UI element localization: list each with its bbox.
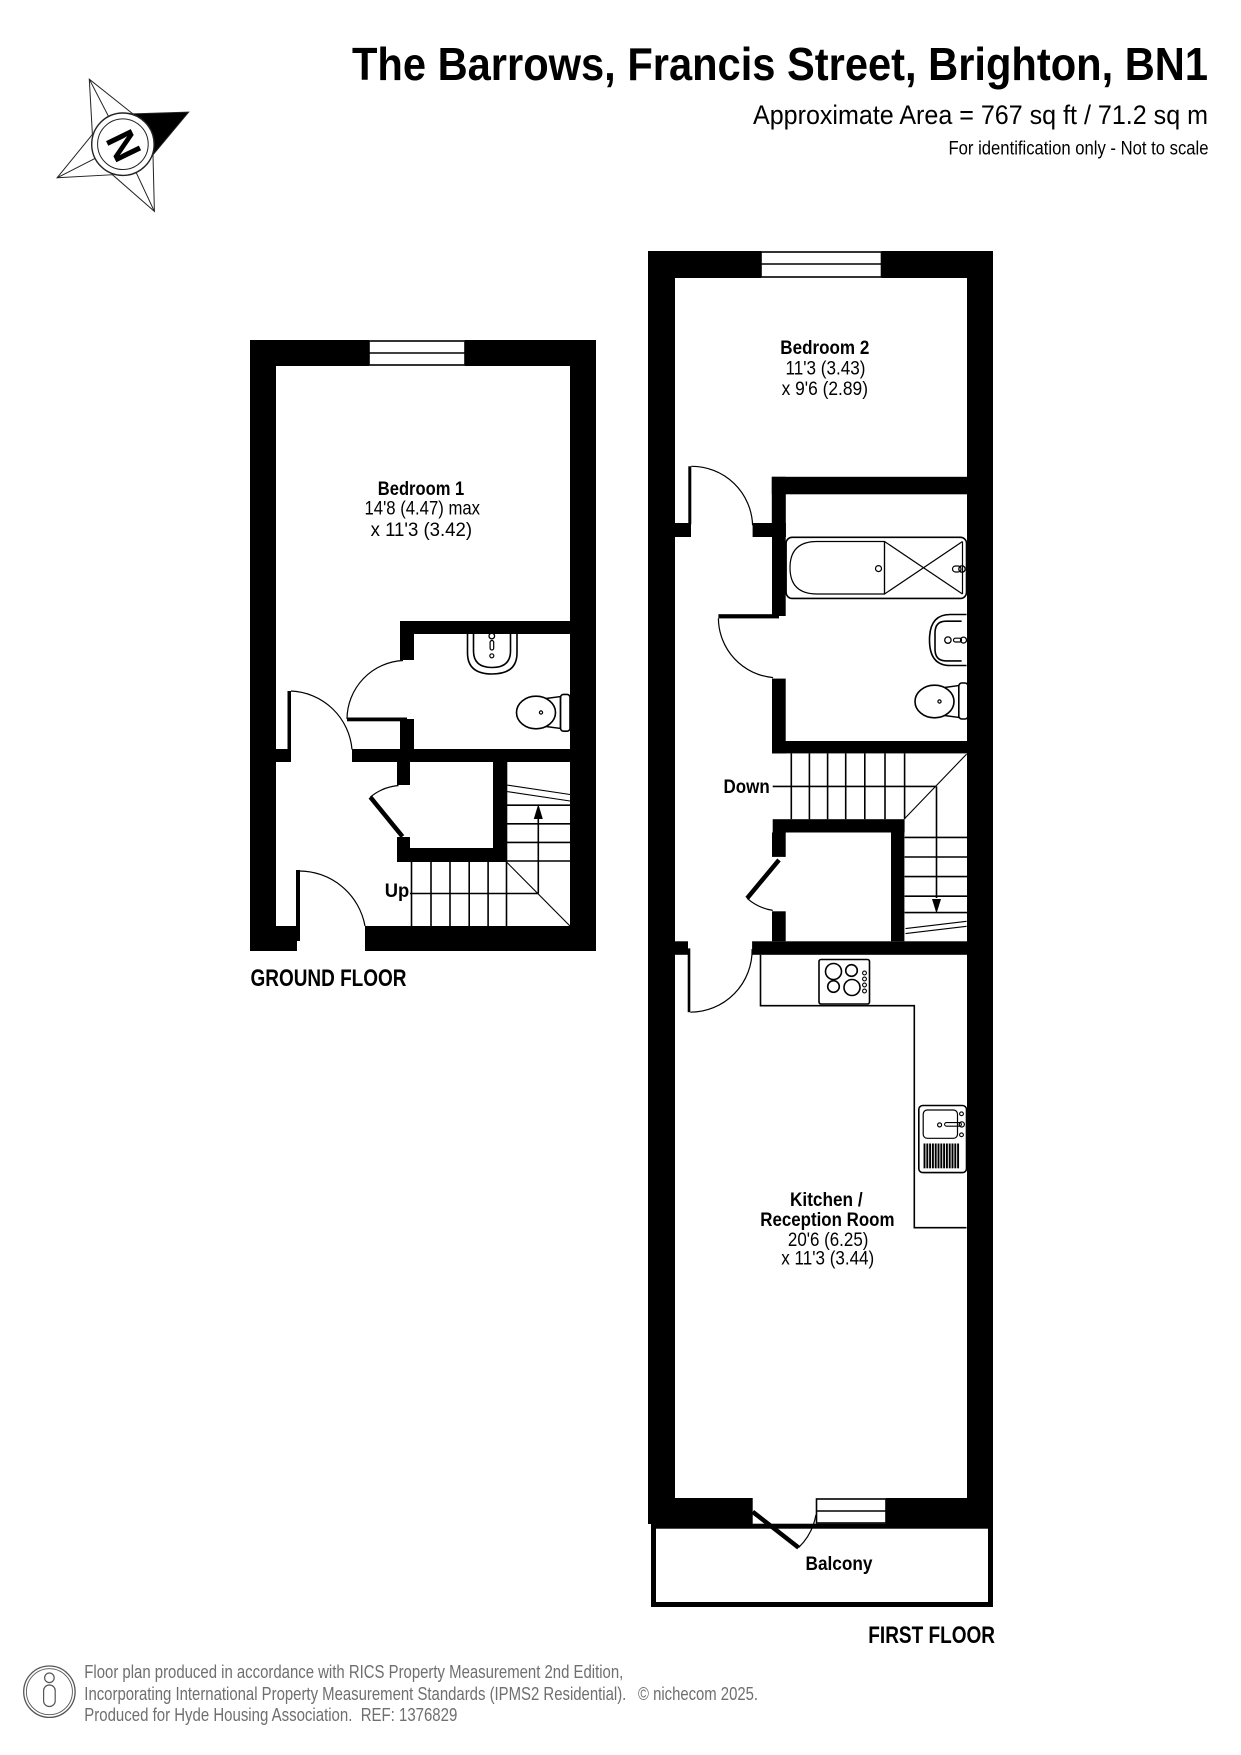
svg-text:x 11'3 (3.42): x 11'3 (3.42) bbox=[371, 519, 473, 541]
svg-text:x 9'6 (2.89): x 9'6 (2.89) bbox=[782, 378, 868, 400]
svg-text:Down: Down bbox=[724, 776, 770, 798]
svg-text:Bedroom 2: Bedroom 2 bbox=[780, 337, 869, 359]
svg-text:Incorporating International Pr: Incorporating International Property Mea… bbox=[84, 1684, 626, 1704]
svg-text:© nichecom 2025.: © nichecom 2025. bbox=[638, 1684, 758, 1704]
svg-text:FIRST FLOOR: FIRST FLOOR bbox=[868, 1622, 995, 1649]
svg-text:Bedroom 1: Bedroom 1 bbox=[378, 478, 465, 500]
svg-text:Reception Room: Reception Room bbox=[760, 1209, 894, 1231]
svg-text:GROUND FLOOR: GROUND FLOOR bbox=[251, 965, 407, 992]
svg-text:The Barrows, Francis Street, B: The Barrows, Francis Street, Brighton, B… bbox=[352, 38, 1208, 90]
svg-text:Floor plan produced in accorda: Floor plan produced in accordance with R… bbox=[84, 1662, 623, 1682]
svg-text:Produced for Hyde Housing Asso: Produced for Hyde Housing Association. R… bbox=[84, 1705, 457, 1725]
svg-text:14'8 (4.47) max: 14'8 (4.47) max bbox=[365, 498, 481, 520]
svg-text:Up: Up bbox=[385, 880, 410, 902]
svg-text:Approximate Area = 767 sq ft /: Approximate Area = 767 sq ft / 71.2 sq m bbox=[753, 100, 1208, 130]
svg-text:Kitchen /: Kitchen / bbox=[790, 1189, 863, 1211]
svg-text:For identification only - Not: For identification only - Not to scale bbox=[949, 139, 1209, 160]
svg-text:Balcony: Balcony bbox=[806, 1553, 873, 1575]
svg-text:x 11'3 (3.44): x 11'3 (3.44) bbox=[781, 1248, 874, 1270]
svg-text:11'3 (3.43): 11'3 (3.43) bbox=[786, 358, 866, 380]
